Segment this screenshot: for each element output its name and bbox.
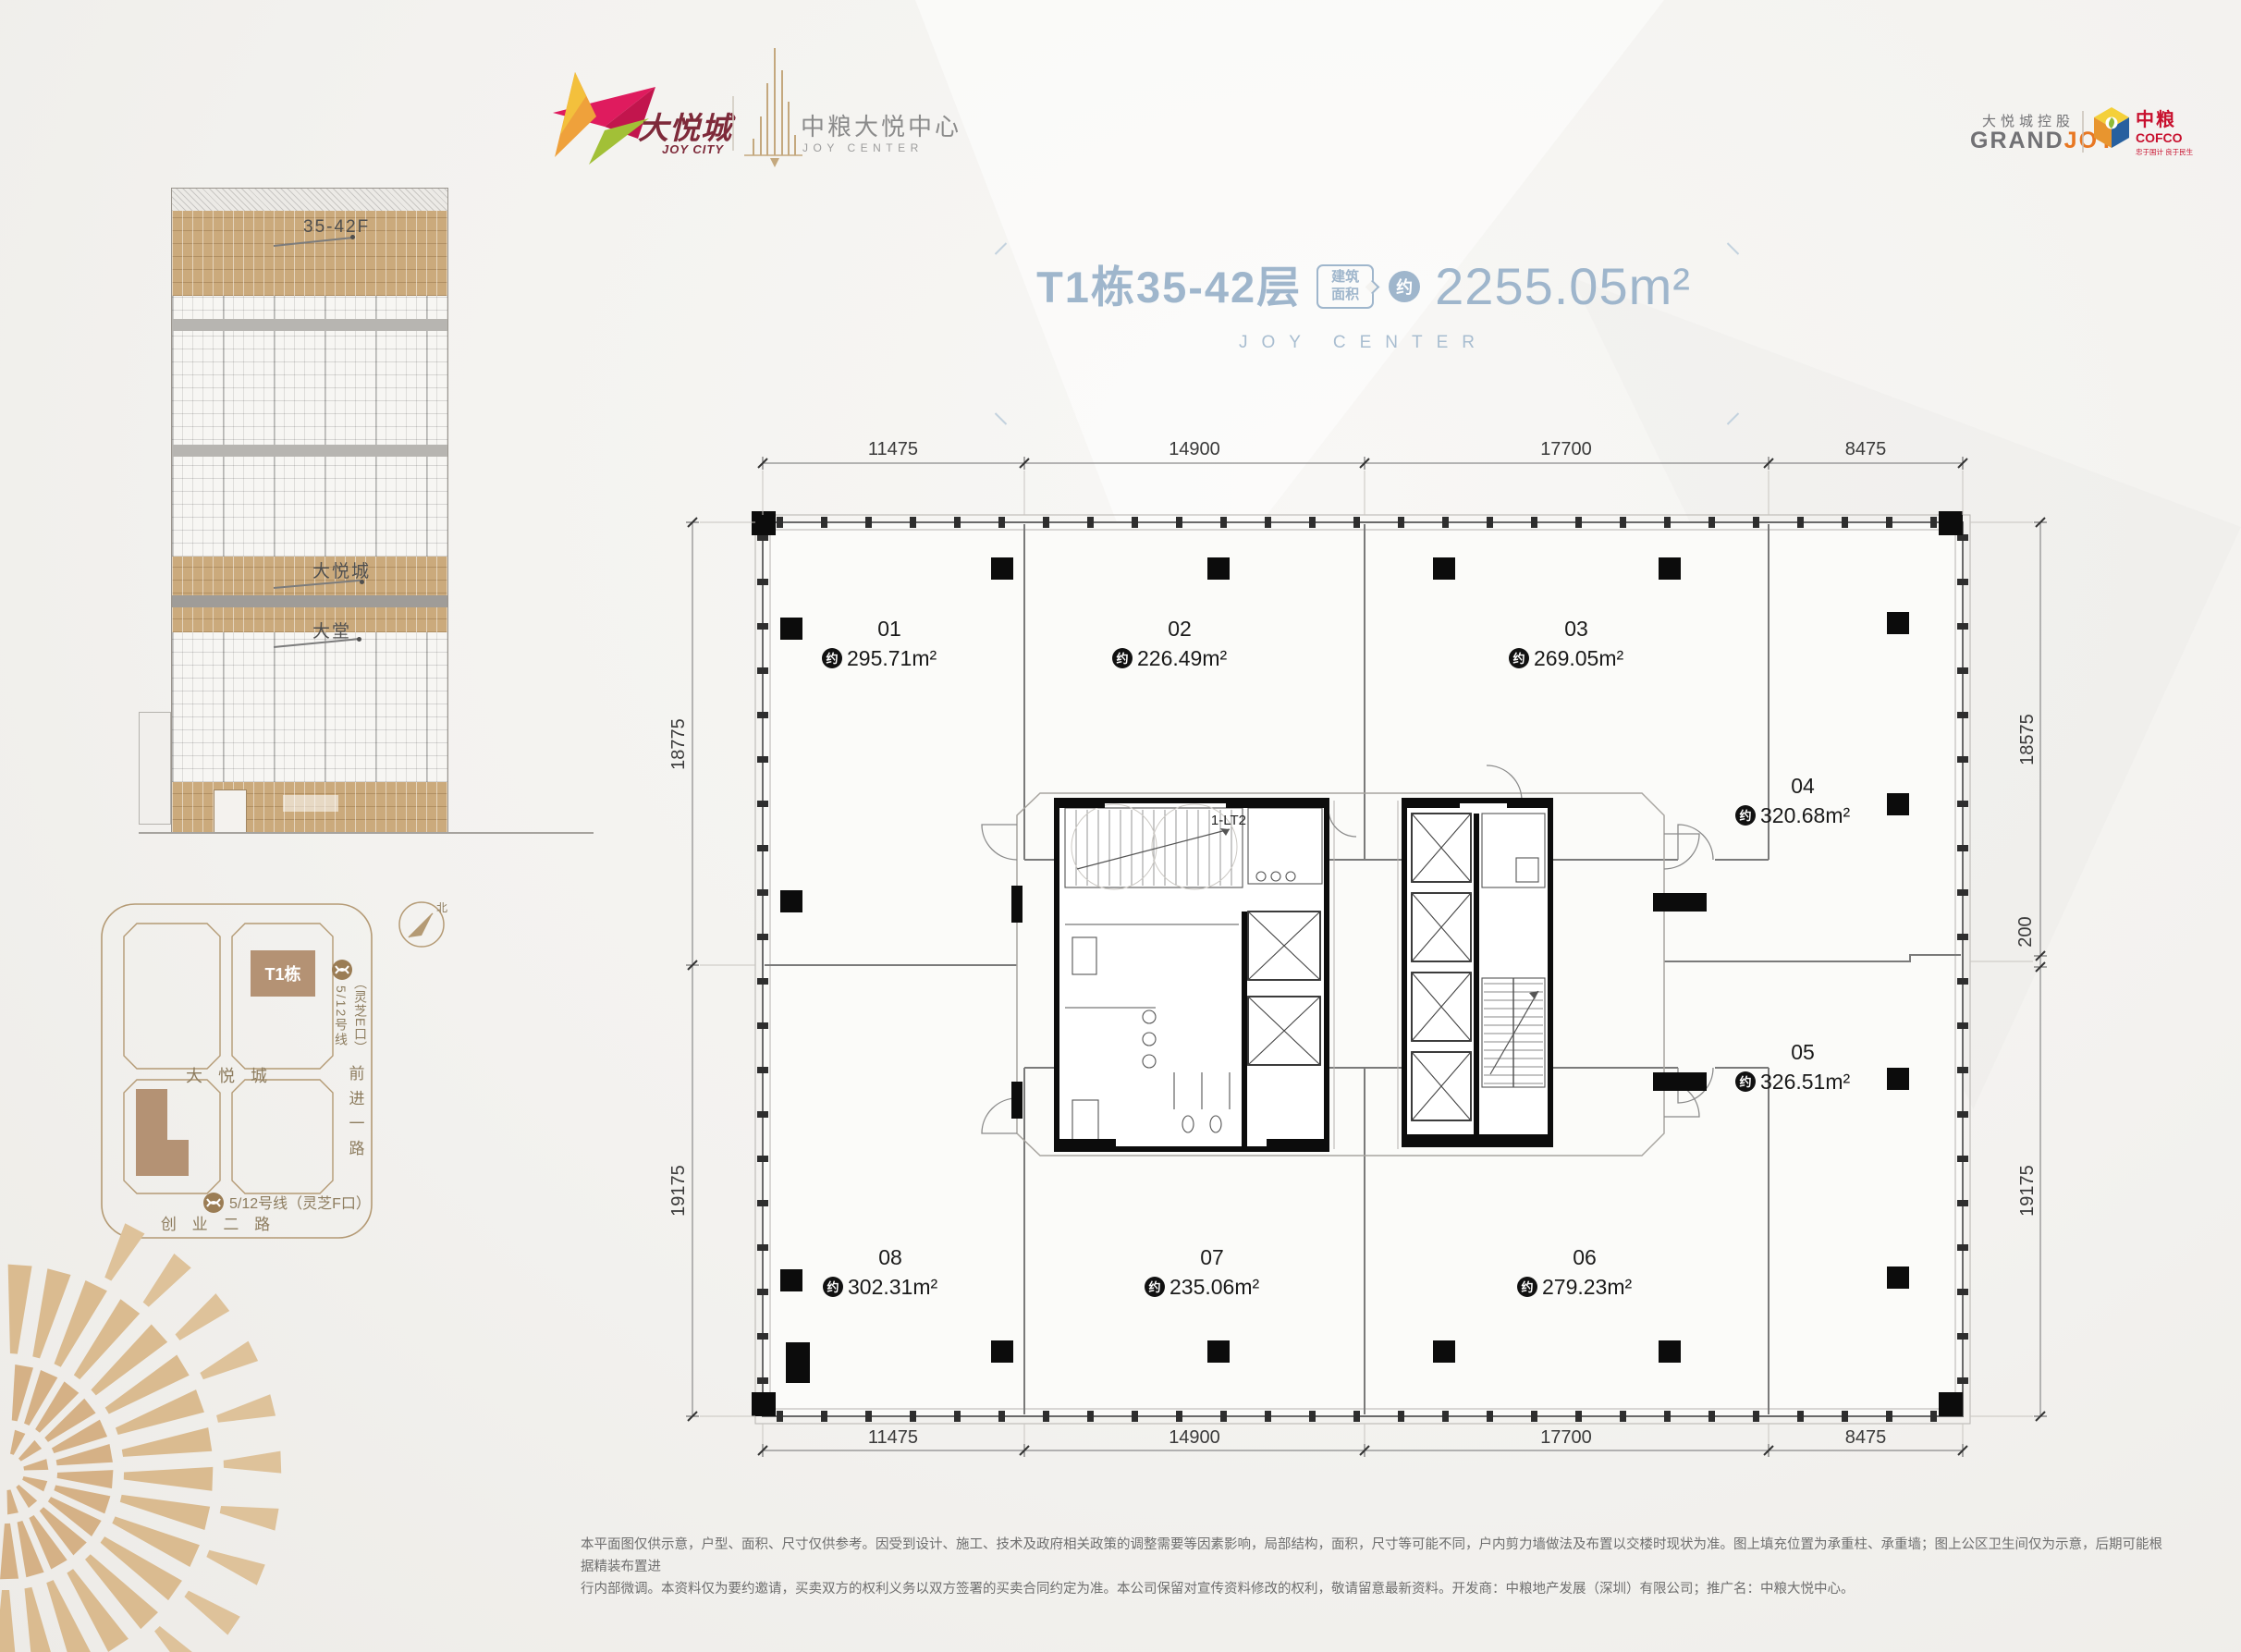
title-corner-tick bbox=[1727, 242, 1739, 254]
total-area: 2255.05m² bbox=[1435, 261, 1691, 312]
metro-f-label: 5/12号线（灵芝F口） bbox=[229, 1195, 371, 1212]
approx-icon: 约 bbox=[1521, 1280, 1533, 1294]
tower-curtainwall bbox=[172, 296, 447, 557]
site-block bbox=[232, 1080, 333, 1193]
elevation-label-floors: 35-42F bbox=[303, 217, 370, 238]
area-badge: 建筑 面积 bbox=[1316, 264, 1374, 309]
floor-plan: 1-LT2 bbox=[675, 421, 2117, 1484]
dim-label: 14900 bbox=[1169, 439, 1220, 459]
unit-number: 02 bbox=[1168, 617, 1192, 641]
unit-area: 302.31m² bbox=[848, 1275, 938, 1299]
tower-mall-band bbox=[172, 557, 447, 632]
unit-number: 04 bbox=[1791, 774, 1815, 798]
dimension-right: 18575 200 19175 bbox=[1970, 518, 2047, 1421]
header-left-logos: 大悦城 JOY CITY 中粮大悦中心 JOY CENTER bbox=[536, 37, 1017, 185]
page-title: T1栋35-42层 bbox=[1036, 265, 1302, 309]
fan-ring-inner bbox=[0, 1364, 113, 1579]
unit-number: 07 bbox=[1200, 1245, 1224, 1269]
title-block: T1栋35-42层 建筑 面积 约 2255.05m² JOY CENTER bbox=[980, 261, 1747, 353]
approx-icon: 约 bbox=[1116, 652, 1128, 666]
unit-number: 01 bbox=[877, 617, 901, 641]
disclaimer: 本平面图仅供示意，户型、面积、尺寸仅供参考。因受到设计、施工、技术及政府相关政策… bbox=[581, 1535, 2163, 1601]
unit-area: 295.71m² bbox=[847, 646, 937, 670]
building-elevation: 35-42F 大悦城 大堂 bbox=[139, 180, 601, 846]
approx-icon: 约 bbox=[1148, 1280, 1160, 1294]
tower-stripe bbox=[172, 445, 447, 457]
dim-label: 11475 bbox=[868, 1427, 918, 1448]
header-right-logos: 大悦城控股 GRANDJOY 中粮 COFCO 忠于国计 良于民生 bbox=[1960, 100, 2228, 174]
dim-label: 19175 bbox=[668, 1165, 689, 1217]
approx-icon: 约 bbox=[1739, 809, 1751, 823]
grandjoy-en-gray: GRAND bbox=[1970, 128, 2064, 153]
dim-label: 18775 bbox=[668, 718, 689, 770]
dimension-left: 18775 19175 bbox=[668, 518, 755, 1421]
tower-drawing bbox=[171, 188, 448, 832]
approx-icon: 约 bbox=[827, 1280, 839, 1294]
lobby-door bbox=[214, 789, 247, 834]
dim-label: 18575 bbox=[2017, 714, 2038, 765]
cofco-en: COFCO bbox=[2136, 130, 2183, 145]
joycenter-en: JOY CENTER bbox=[802, 141, 924, 154]
core-stair-label: 1-LT2 bbox=[1211, 813, 1246, 828]
metro-icon bbox=[203, 1193, 224, 1213]
dim-label: 200 bbox=[2015, 916, 2036, 947]
cofco-cn: 中粮 bbox=[2136, 108, 2176, 130]
disclaimer-line1: 本平面图仅供示意，户型、面积、尺寸仅供参考。因受到设计、施工、技术及政府相关政策… bbox=[581, 1535, 2163, 1579]
l-building-footprint bbox=[136, 1089, 189, 1176]
tower-stripe bbox=[172, 595, 447, 607]
t1-label: T1栋 bbox=[264, 964, 300, 984]
core-right bbox=[1404, 798, 1550, 1144]
mall-road-label: 大 悦 城 bbox=[186, 1067, 273, 1085]
dim-label: 19175 bbox=[2017, 1165, 2038, 1217]
approx-icon: 约 bbox=[1512, 652, 1525, 666]
title-corner-tick bbox=[995, 242, 1007, 254]
tower-lower-band bbox=[172, 632, 447, 782]
joycity-cn: 大悦城 bbox=[638, 111, 736, 145]
dimension-top: 11475 14900 17700 8475 bbox=[758, 439, 1967, 515]
elevation-label-mall: 大悦城 bbox=[312, 557, 371, 582]
unit-number: 03 bbox=[1564, 617, 1588, 641]
joycenter-building-icon bbox=[744, 48, 802, 167]
dim-label: 17700 bbox=[1540, 439, 1592, 459]
approx-icon: 约 bbox=[826, 652, 838, 666]
leader-dot bbox=[357, 637, 361, 642]
title-subtitle: JOY CENTER bbox=[980, 333, 1747, 353]
unit-number: 06 bbox=[1573, 1245, 1597, 1269]
leader-dot bbox=[360, 580, 364, 584]
approx-icon: 约 bbox=[1739, 1075, 1751, 1089]
poster-canvas: 大悦城 JOY CITY 中粮大悦中心 JOY CENTER 大悦城控股 GRA… bbox=[0, 0, 2241, 1652]
dim-label: 8475 bbox=[1845, 1427, 1887, 1448]
cofco-tagline: 忠于国计 良于民生 bbox=[2136, 147, 2194, 156]
tower-mech-band bbox=[172, 189, 447, 212]
joycity-en: JOY CITY bbox=[662, 142, 724, 156]
metro-icon bbox=[332, 960, 352, 980]
site-map: T1栋 大 悦 城 前进一路 创 业 二 路 5/12号线 （灵芝E口） 5/1… bbox=[92, 886, 462, 1255]
unit-area: 235.06m² bbox=[1169, 1275, 1260, 1299]
tower-stripe bbox=[172, 319, 447, 331]
ground-line bbox=[139, 832, 594, 834]
unit-area: 320.68m² bbox=[1760, 803, 1851, 827]
lobby-window bbox=[283, 795, 338, 812]
unit-number: 08 bbox=[878, 1245, 902, 1269]
disclaimer-line2: 行内部微调。本资料仅为要约邀请，买卖双方的权利义务以双方签署的买卖合同约定为准。… bbox=[581, 1579, 2163, 1601]
unit-area: 269.05m² bbox=[1534, 646, 1624, 670]
dim-label: 11475 bbox=[868, 439, 918, 459]
unit-number: 05 bbox=[1791, 1040, 1815, 1064]
site-block bbox=[124, 924, 220, 1069]
dim-label: 17700 bbox=[1540, 1427, 1592, 1448]
road-right-label: 前进一路 bbox=[347, 1065, 365, 1165]
unit-area: 226.49m² bbox=[1137, 646, 1228, 670]
approx-circle: 约 bbox=[1389, 271, 1420, 302]
core-left: 1-LT2 bbox=[1057, 798, 1327, 1149]
joycenter-cn: 中粮大悦中心 bbox=[801, 113, 961, 141]
compass-north-label: 北 bbox=[436, 901, 447, 914]
dimension-bottom: 11475 14900 17700 8475 bbox=[758, 1424, 1967, 1457]
metro-e-line-label: 5/12号线 bbox=[334, 985, 349, 1047]
decorative-fan bbox=[0, 1230, 351, 1652]
dim-label: 14900 bbox=[1169, 1427, 1220, 1448]
unit-area: 326.51m² bbox=[1760, 1070, 1851, 1094]
plan-interior bbox=[763, 522, 1963, 1416]
dim-label: 8475 bbox=[1845, 439, 1887, 459]
unit-area: 279.23m² bbox=[1542, 1275, 1633, 1299]
leader-dot bbox=[350, 235, 355, 239]
tower-lobby-band bbox=[172, 782, 447, 833]
area-badge-line1: 建筑 bbox=[1320, 269, 1370, 287]
metro-e-exit-label: （灵芝E口） bbox=[353, 976, 368, 1055]
podium-annex bbox=[139, 712, 171, 825]
area-badge-line2: 面积 bbox=[1320, 287, 1370, 304]
